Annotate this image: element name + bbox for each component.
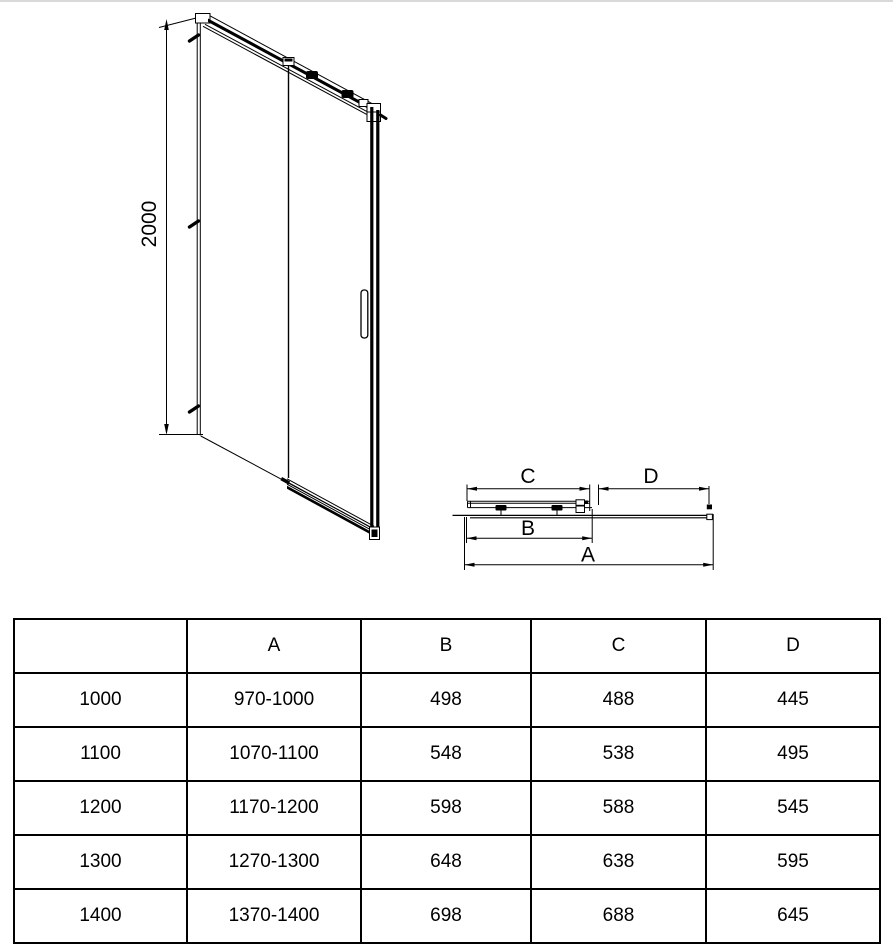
wall-bracket xyxy=(707,505,712,510)
arrow-down-icon xyxy=(164,424,169,435)
plan-glass-door xyxy=(453,514,713,519)
table-cell: 548 xyxy=(361,727,531,781)
column-header-b: B xyxy=(361,619,531,673)
dimension-b: B xyxy=(467,517,593,540)
column-header-d: D xyxy=(706,619,880,673)
dim-d-label: D xyxy=(643,465,658,488)
roller xyxy=(496,505,507,511)
table-row: 1100 1070-1100 548 538 495 xyxy=(14,727,880,781)
arrow-right-icon xyxy=(580,487,590,491)
table-header-row: A B C D xyxy=(14,619,880,673)
table-cell: 498 xyxy=(361,673,531,727)
table-cell: 1170-1200 xyxy=(187,781,361,835)
rail-foot xyxy=(281,477,291,485)
dimension-a: A xyxy=(465,544,714,567)
roller-carriage xyxy=(306,71,318,79)
table-cell: 638 xyxy=(531,835,706,889)
size-cell: 1300 xyxy=(14,835,187,889)
table-cell: 688 xyxy=(531,889,706,943)
table-cell: 588 xyxy=(531,781,706,835)
size-cell: 1100 xyxy=(14,727,187,781)
size-table: A B C D 1000 970-1000 498 488 445 1100 1… xyxy=(13,618,881,944)
table-cell: 495 xyxy=(706,727,880,781)
corner-header-cell xyxy=(14,619,187,673)
height-dimension-label: 2000 xyxy=(138,201,161,248)
size-table-container: A B C D 1000 970-1000 498 488 445 1100 1… xyxy=(13,618,879,944)
size-cell: 1000 xyxy=(14,673,187,727)
table-cell: 970-1000 xyxy=(187,673,361,727)
arrow-left-icon xyxy=(467,536,477,540)
door-end-cap xyxy=(707,514,713,519)
door-handle xyxy=(361,290,368,338)
dim-c-label: C xyxy=(520,465,535,488)
bottom-rail xyxy=(201,436,380,540)
table-cell: 545 xyxy=(706,781,880,835)
table-cell: 698 xyxy=(361,889,531,943)
table-cell: 1370-1400 xyxy=(187,889,361,943)
column-header-c: C xyxy=(531,619,706,673)
table-row: 1300 1270-1300 648 638 595 xyxy=(14,835,880,889)
table-cell: 445 xyxy=(706,673,880,727)
plan-view: C D xyxy=(453,465,714,570)
top-rail xyxy=(196,14,387,122)
right-door-frame xyxy=(370,107,379,534)
table-cell: 598 xyxy=(361,781,531,835)
table-row: 1200 1170-1200 598 588 545 xyxy=(14,781,880,835)
dimension-d: D xyxy=(599,465,710,491)
table-row: 1000 970-1000 498 488 445 xyxy=(14,673,880,727)
table-cell: 645 xyxy=(706,889,880,943)
table-cell: 488 xyxy=(531,673,706,727)
dim-b-label: B xyxy=(521,517,535,540)
size-cell: 1400 xyxy=(14,889,187,943)
table-cell: 595 xyxy=(706,835,880,889)
technical-drawing: 2000 xyxy=(0,0,893,600)
size-cell: 1200 xyxy=(14,781,187,835)
table-cell: 538 xyxy=(531,727,706,781)
rail-connector xyxy=(576,500,585,506)
front-view: 2000 xyxy=(138,14,386,540)
arrow-left-icon xyxy=(465,563,475,567)
table-cell: 1070-1100 xyxy=(187,727,361,781)
dimension-c: C xyxy=(467,465,590,491)
roller-carriage xyxy=(342,90,354,98)
table-cell: 648 xyxy=(361,835,531,889)
arrow-right-icon xyxy=(699,487,709,491)
table-row: 1400 1370-1400 698 688 645 xyxy=(14,889,880,943)
arrow-up-icon xyxy=(164,19,169,30)
rail-connector xyxy=(576,506,585,513)
left-wall-profile xyxy=(190,22,201,436)
wall-bracket xyxy=(381,115,387,119)
roller xyxy=(552,505,563,511)
arrow-left-icon xyxy=(599,487,609,491)
arrow-left-icon xyxy=(467,487,477,491)
arrow-right-icon xyxy=(582,536,592,540)
page: 2000 xyxy=(0,0,893,948)
arrow-right-icon xyxy=(703,563,713,567)
dim-a-label: A xyxy=(581,544,595,567)
column-header-a: A xyxy=(187,619,361,673)
table-cell: 1270-1300 xyxy=(187,835,361,889)
